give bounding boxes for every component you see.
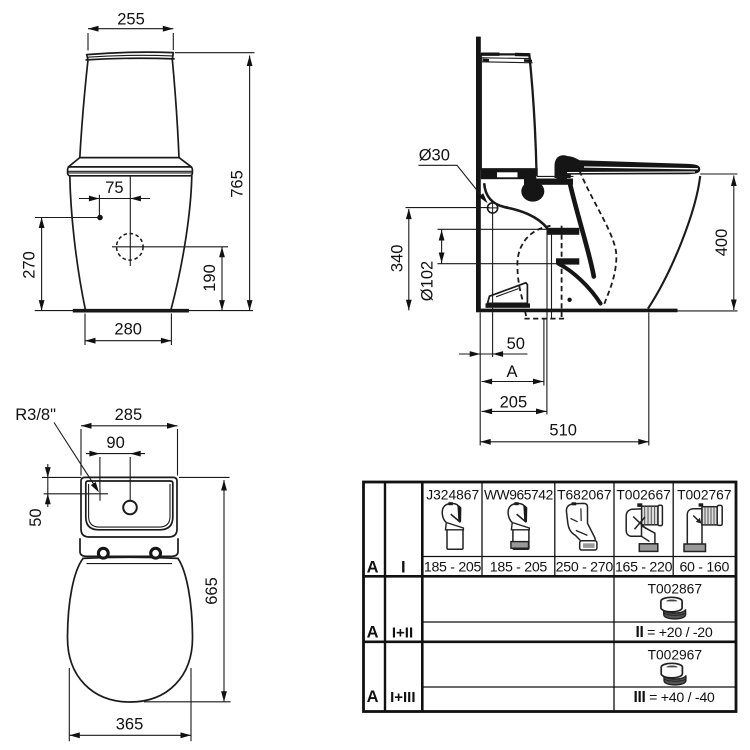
svg-text:60 - 160: 60 - 160 (679, 560, 729, 576)
svg-text:75: 75 (105, 179, 123, 197)
svg-text:185 - 205: 185 - 205 (490, 560, 548, 576)
svg-text:765: 765 (229, 170, 247, 198)
svg-text:A: A (367, 559, 379, 577)
svg-text:R3/8": R3/8" (15, 406, 56, 424)
svg-text:510: 510 (549, 421, 577, 439)
svg-text:90: 90 (106, 434, 124, 452)
svg-text:205: 205 (500, 394, 528, 412)
svg-text:50: 50 (27, 508, 45, 526)
svg-text:T002767: T002767 (677, 488, 731, 503)
svg-text:270: 270 (21, 251, 39, 279)
svg-text:J324867: J324867 (426, 488, 479, 503)
svg-text:T002867: T002867 (648, 582, 702, 597)
svg-text:A: A (367, 624, 379, 642)
svg-text:I+II: I+II (392, 625, 413, 642)
svg-text:I+III: I+III (390, 689, 415, 706)
svg-text:50: 50 (507, 335, 525, 353)
svg-text:285: 285 (115, 406, 143, 424)
svg-text:III = +40 / -40: III = +40 / -40 (634, 689, 715, 706)
svg-text:Ø30: Ø30 (419, 147, 450, 165)
svg-text:A: A (367, 688, 379, 706)
svg-text:185 - 205: 185 - 205 (424, 560, 482, 576)
svg-text:255: 255 (117, 11, 145, 29)
svg-text:T002967: T002967 (648, 648, 702, 663)
svg-text:T682067: T682067 (557, 488, 611, 503)
svg-text:400: 400 (713, 229, 731, 257)
svg-text:II = +20 / -20: II = +20 / -20 (636, 624, 713, 641)
svg-text:165 - 220: 165 - 220 (615, 560, 673, 576)
svg-text:250 - 270: 250 - 270 (556, 560, 614, 576)
svg-text:WW965742: WW965742 (484, 488, 553, 503)
svg-text:340: 340 (389, 245, 407, 273)
svg-text:I: I (401, 559, 406, 577)
svg-text:Ø102: Ø102 (419, 261, 437, 301)
svg-text:A: A (506, 363, 517, 381)
svg-text:365: 365 (116, 716, 144, 734)
svg-text:665: 665 (203, 577, 221, 605)
svg-text:280: 280 (114, 321, 142, 339)
svg-text:190: 190 (201, 264, 219, 292)
svg-text:T002667: T002667 (616, 488, 670, 503)
